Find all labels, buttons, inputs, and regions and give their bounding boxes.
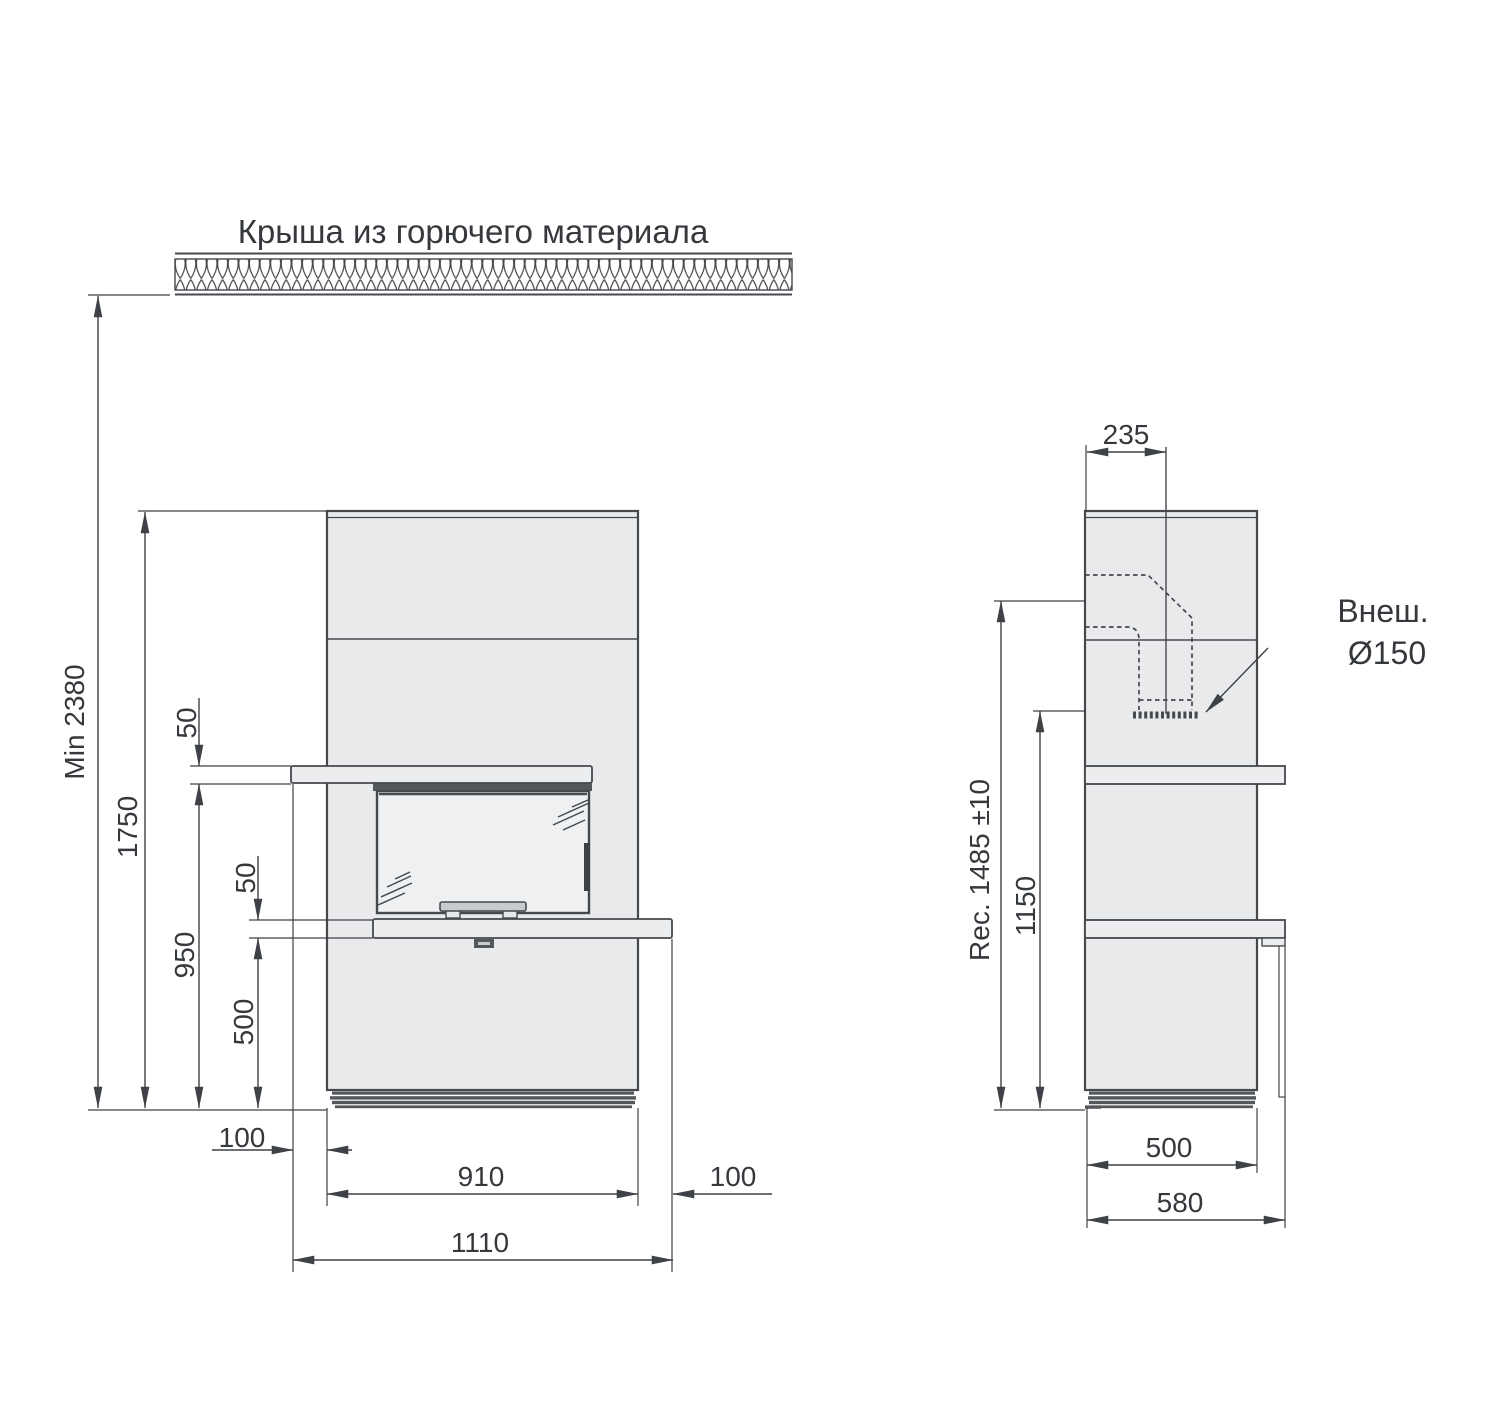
front-top-shelf bbox=[291, 766, 592, 783]
side-top-shelf-band bbox=[1085, 766, 1285, 784]
side-hearth-band bbox=[1085, 920, 1285, 938]
front-plinth bbox=[330, 1092, 636, 1109]
roof-title: Крыша из горючего материала bbox=[238, 213, 709, 250]
roof-section: Крыша из горючего материала bbox=[175, 213, 792, 295]
dim-910-label: 910 bbox=[458, 1161, 505, 1192]
dim-500-depth-label: 500 bbox=[1146, 1132, 1193, 1163]
front-hearth-shelf bbox=[373, 919, 672, 938]
flue-note-line1: Внеш. bbox=[1337, 593, 1428, 629]
dim-rec-1485-label: Rec. 1485 ±10 bbox=[964, 779, 995, 961]
dim-50-shelf-label: 50 bbox=[171, 707, 202, 738]
dim-1150-label: 1150 bbox=[1010, 876, 1041, 936]
side-plinth bbox=[1085, 1092, 1256, 1109]
hearth-latch bbox=[474, 939, 494, 948]
dim-100-right-label: 100 bbox=[710, 1161, 757, 1192]
fireplace-installation-diagram: Крыша из горючего материала bbox=[0, 0, 1500, 1427]
dim-950-label: 950 bbox=[169, 932, 200, 979]
dim-100-left-label: 100 bbox=[219, 1122, 266, 1153]
door-handle-bar bbox=[584, 843, 590, 891]
firebox-glass-door bbox=[377, 791, 590, 918]
front-view bbox=[291, 511, 672, 1108]
side-view bbox=[1085, 447, 1285, 1109]
rear-spacer-rail bbox=[1279, 946, 1285, 1097]
roof-insulation-hatch bbox=[175, 259, 792, 290]
dim-235-label: 235 bbox=[1103, 419, 1150, 450]
flue-note-line2: Ø150 bbox=[1348, 635, 1426, 671]
technical-drawing-page: Крыша из горючего материала bbox=[0, 0, 1500, 1427]
side-body bbox=[1085, 511, 1257, 1090]
dim-580-depth-label: 580 bbox=[1157, 1187, 1204, 1218]
glass-pane bbox=[377, 791, 589, 913]
rear-bracket-step bbox=[1262, 938, 1285, 946]
dim-1110-label: 1110 bbox=[451, 1227, 509, 1258]
dim-500-label: 500 bbox=[228, 999, 259, 1046]
dim-1750-label: 1750 bbox=[112, 796, 143, 858]
dim-50-hearth-label: 50 bbox=[230, 862, 261, 893]
dim-min-2380-label: Min 2380 bbox=[59, 664, 90, 779]
